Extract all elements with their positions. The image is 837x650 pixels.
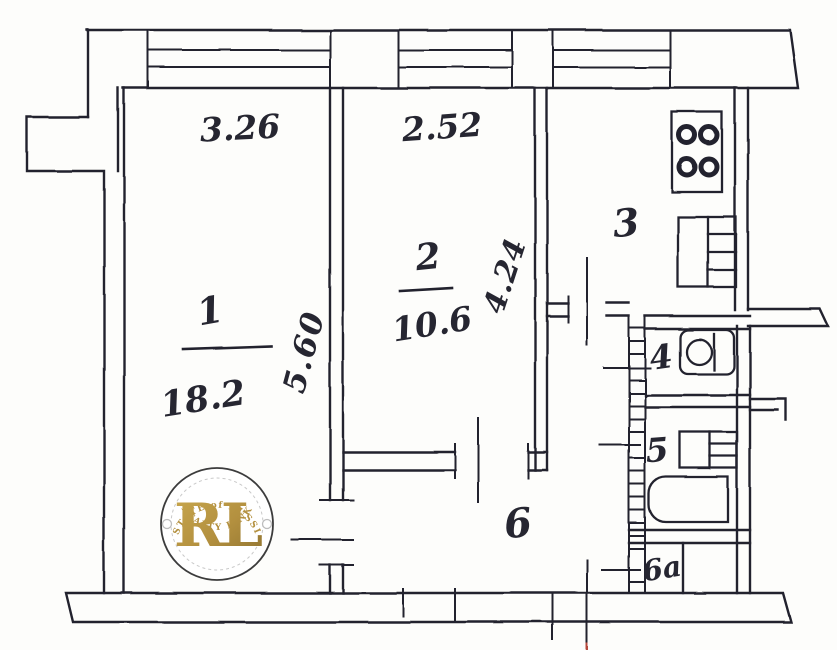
watermark-dot-right [263,520,272,529]
kitchen-number-label: 3 [611,203,641,243]
watermark-arc-top: ESTATE of RUSSIA [0,0,262,537]
svg-text:ESTATE of RUSSIA: ESTATE of RUSSIA [0,0,262,537]
window-icon [398,32,512,87]
room2-number-label: 2 [414,238,443,276]
kitchen-sink-icon [678,217,736,287]
window-icon [148,32,330,87]
window-icon [553,32,670,87]
shaft-wall [629,316,645,593]
floor-plan: ESTATE of RUSSIA REALTY LINK RL 3.26 2.5… [0,0,837,650]
watermark-dot-left [163,520,172,529]
stove-icon [672,112,722,192]
watermark-monogram: RL [174,491,262,561]
bathtub-icon [649,477,728,522]
bathroom-number-label: 5 [644,433,669,468]
windows [148,32,670,87]
hallway-number-label: 6 [502,503,534,546]
washbasin-icon [680,432,737,468]
dimension-room1-width: 3.26 [199,109,281,146]
closet-number-label: 6a [640,552,683,587]
dimension-room2-width: 2.52 [401,108,483,147]
wc-number-label: 4 [647,339,674,375]
toilet-icon [680,330,734,374]
